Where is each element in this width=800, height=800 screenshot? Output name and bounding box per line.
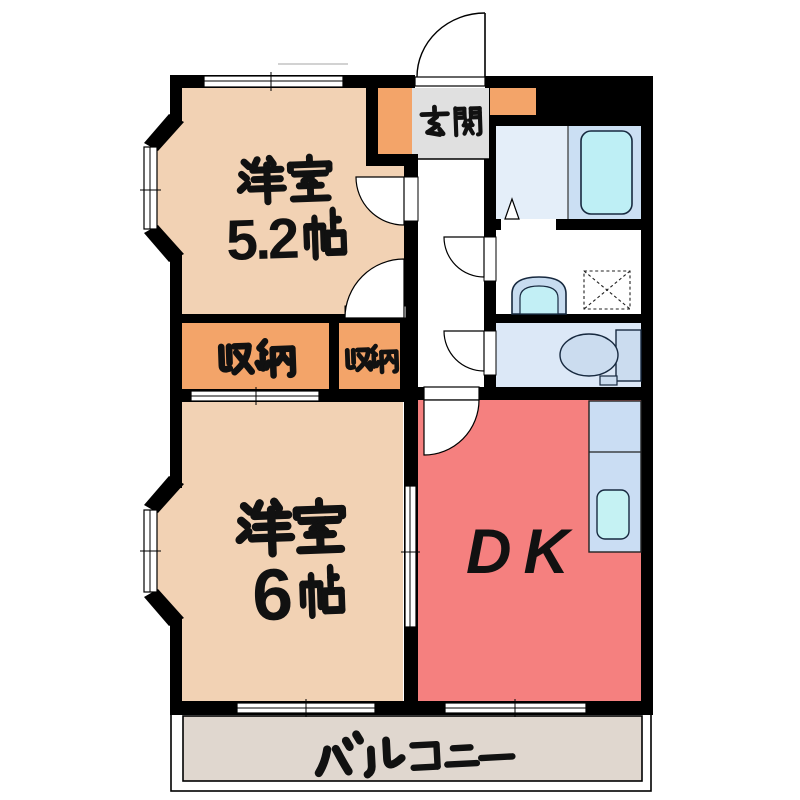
svg-text:DK: DK [466, 517, 581, 587]
svg-text:6: 6 [251, 554, 294, 636]
svg-text:5.2: 5.2 [225, 207, 299, 273]
